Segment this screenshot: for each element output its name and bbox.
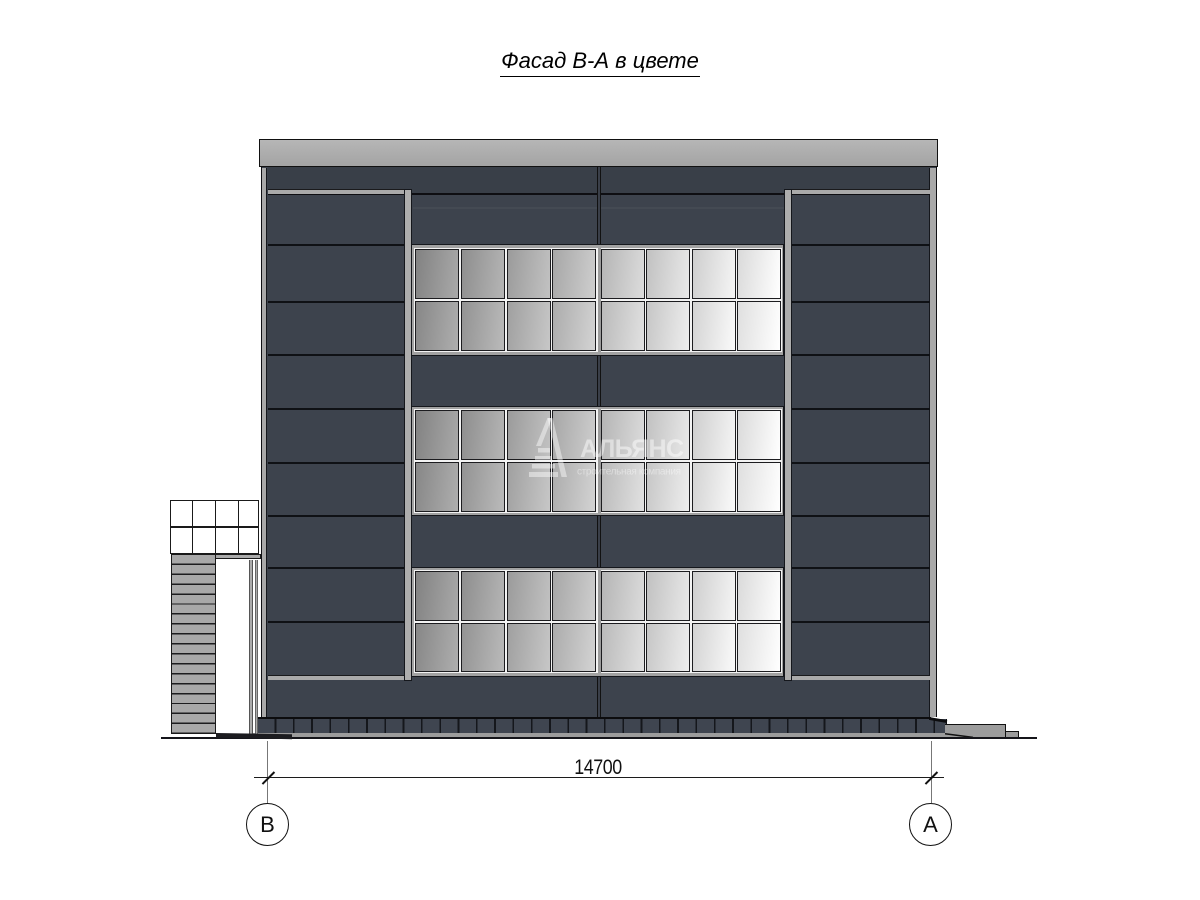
svg-text:строительная компания: строительная компания [577, 467, 681, 478]
svg-text:АЛЬЯНС: АЛЬЯНС [580, 435, 684, 463]
